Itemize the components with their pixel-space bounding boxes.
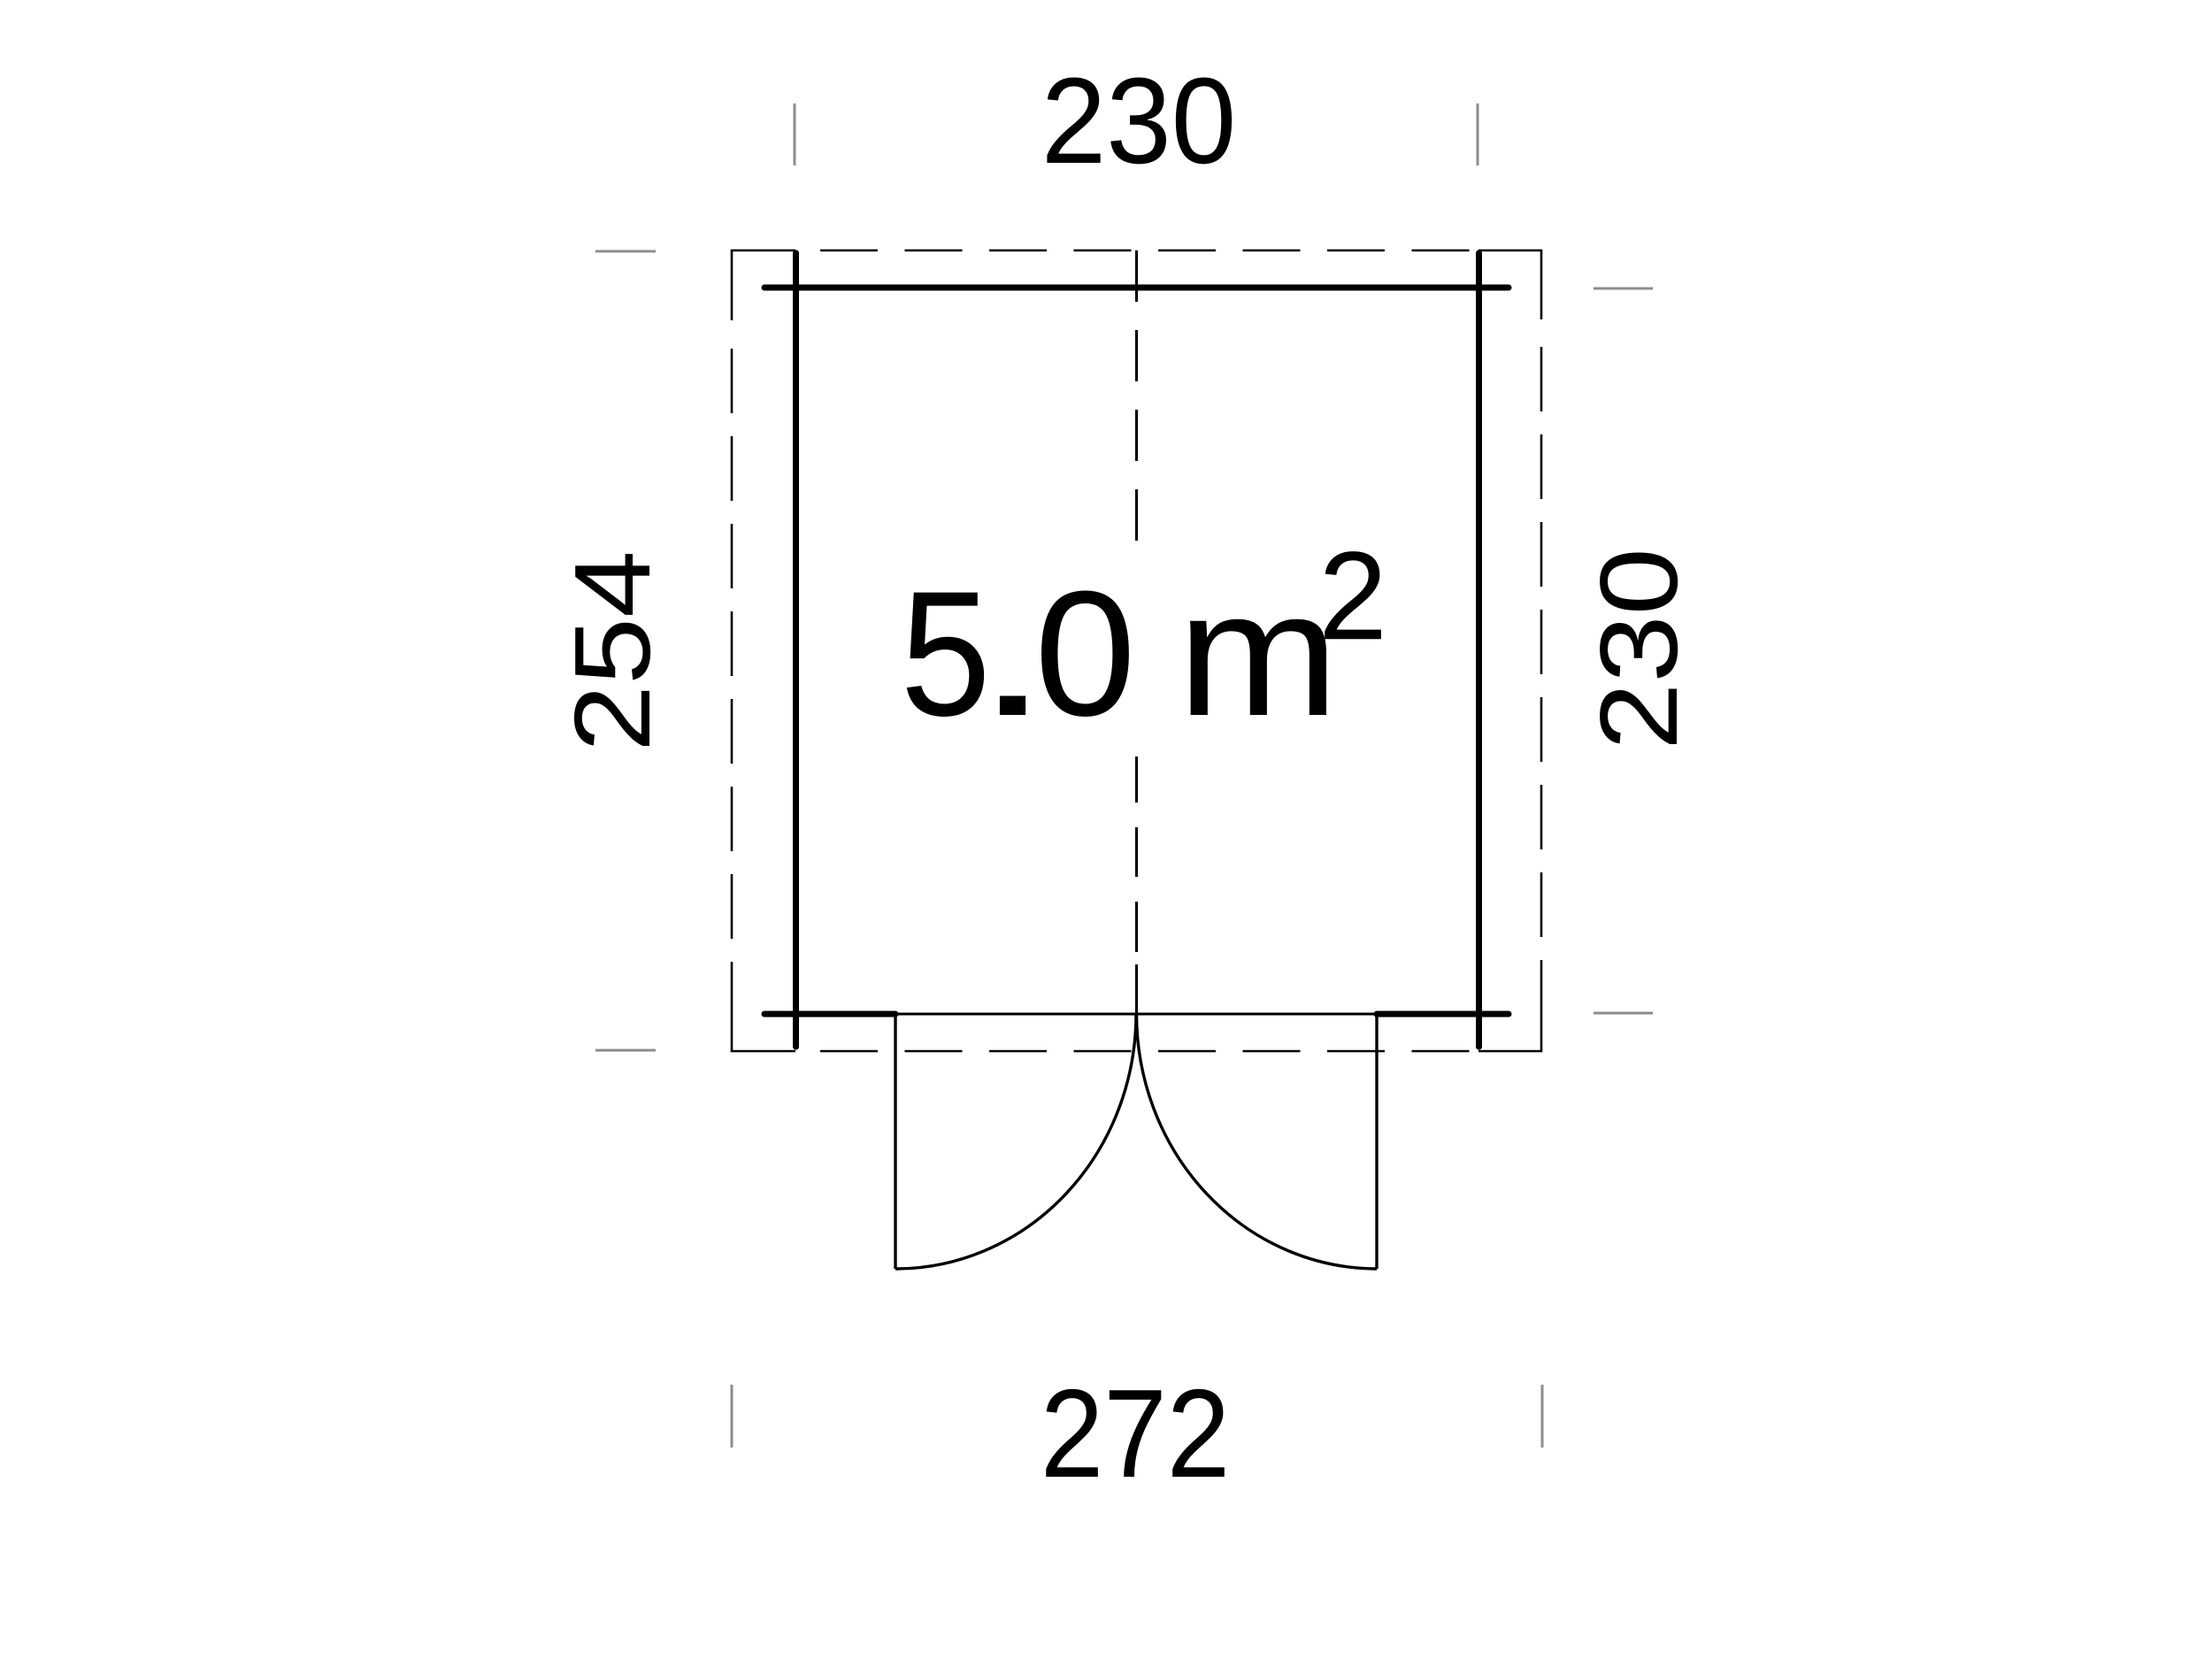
svg-text:230: 230	[1577, 548, 1701, 750]
svg-text:272: 272	[1041, 1363, 1230, 1503]
svg-text:2: 2	[1318, 526, 1387, 665]
svg-text:254: 254	[553, 550, 673, 752]
svg-text:230: 230	[1041, 52, 1236, 188]
svg-text:m: m	[1177, 554, 1339, 753]
svg-text:0: 0	[1034, 555, 1136, 754]
